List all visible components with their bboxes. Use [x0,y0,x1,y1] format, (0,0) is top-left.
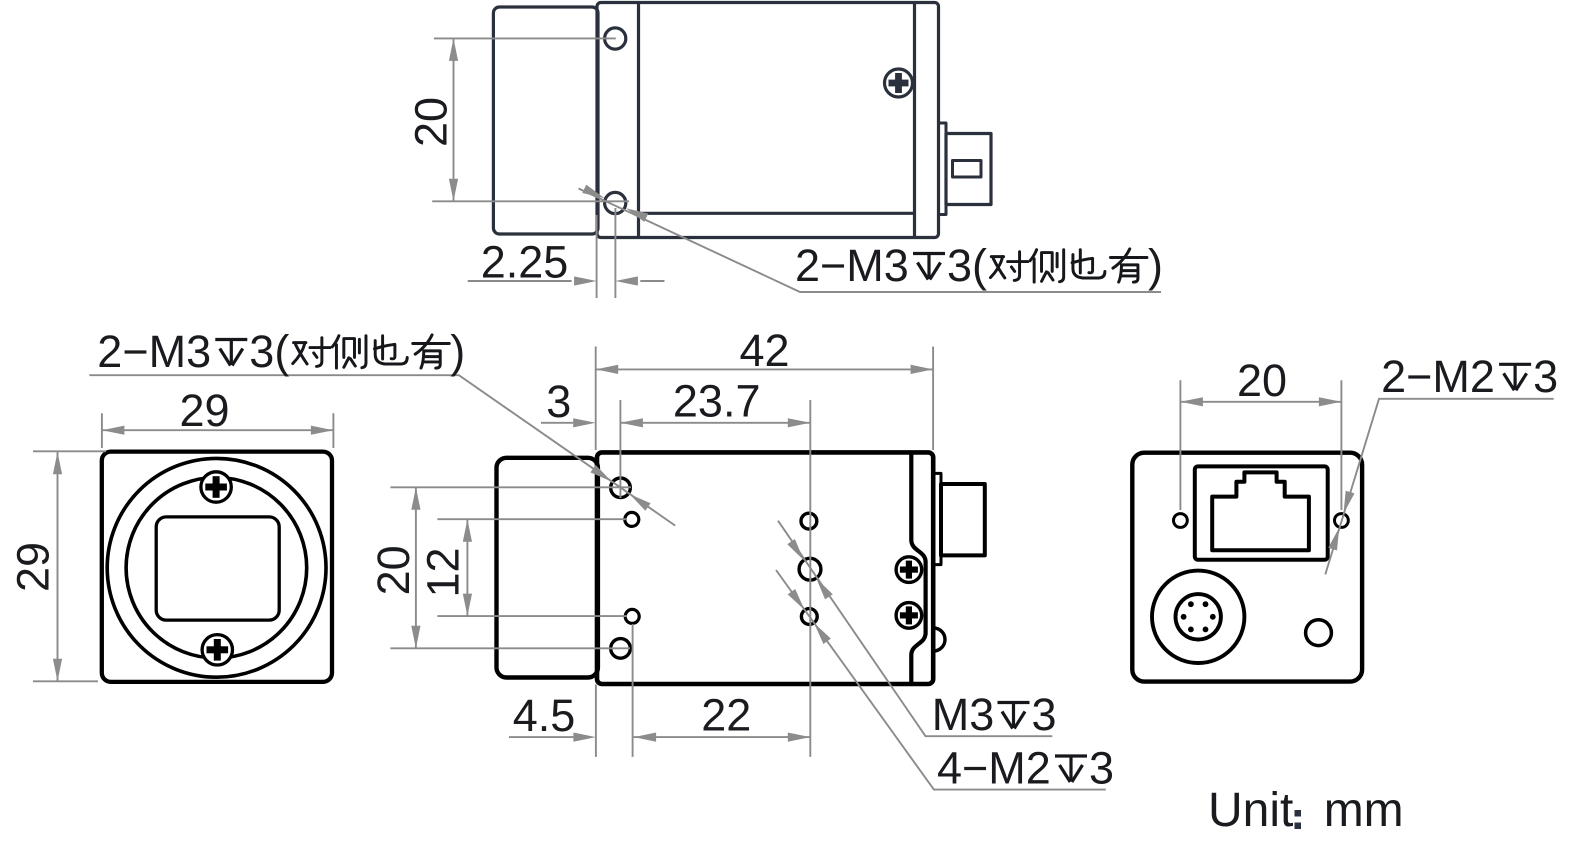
svg-text:20: 20 [406,97,457,147]
svg-text:20: 20 [368,545,419,595]
svg-text:2−M3: 2−M3 [97,326,211,377]
svg-text:2.25: 2.25 [481,237,569,288]
svg-text:3: 3 [1533,351,1558,402]
svg-text:3: 3 [1032,689,1057,740]
svg-text:20: 20 [1237,355,1287,406]
svg-text:3: 3 [1089,743,1114,794]
svg-text:42: 42 [739,325,789,376]
svg-text:4.5: 4.5 [513,690,576,741]
svg-text:12: 12 [418,547,469,597]
svg-text:3(: 3( [947,240,987,291]
svg-text:mm: mm [1324,784,1404,837]
svg-text:M3: M3 [932,689,995,740]
svg-text:): ) [450,326,465,377]
svg-text:3(: 3( [249,326,289,377]
svg-text:29: 29 [179,385,229,436]
svg-text:2−M3: 2−M3 [795,240,909,291]
svg-text:23.7: 23.7 [673,376,761,427]
svg-text:4−M2: 4−M2 [937,743,1051,794]
svg-text:2−M2: 2−M2 [1381,351,1495,402]
svg-text:3: 3 [546,376,571,427]
svg-text:): ) [1148,240,1163,291]
svg-text:Unit: Unit [1208,784,1293,837]
svg-text:22: 22 [701,690,751,741]
svg-text:29: 29 [8,542,59,592]
